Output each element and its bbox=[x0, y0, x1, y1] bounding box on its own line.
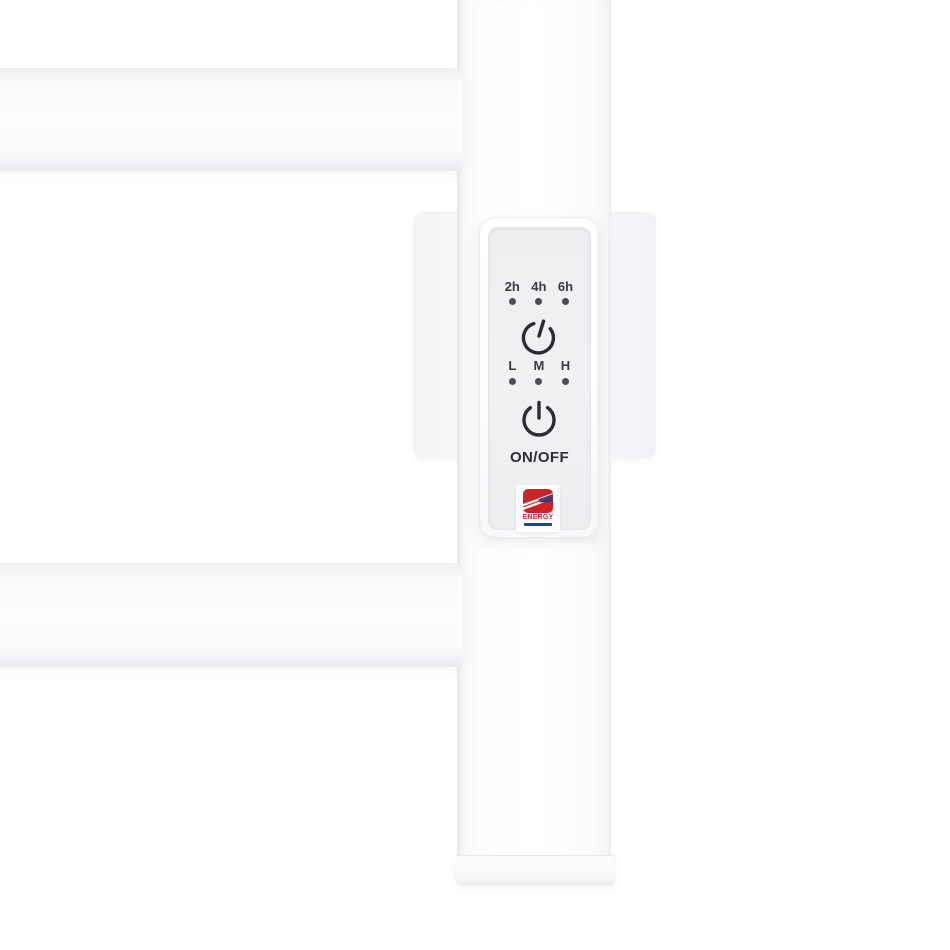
product-photo-scene: 2h 4h 6h bbox=[0, 0, 950, 950]
heat-indicator-dot bbox=[562, 378, 569, 385]
heat-label-row: L M H bbox=[499, 359, 579, 373]
timer-indicator-dot bbox=[535, 298, 542, 305]
timer-indicator-dot bbox=[509, 298, 516, 305]
towel-rail-bar-middle bbox=[0, 563, 463, 667]
timer-indicator-row bbox=[499, 297, 579, 305]
control-panel-face: 2h 4h 6h bbox=[488, 227, 591, 530]
heat-indicator-dot bbox=[535, 378, 542, 385]
control-panel: 2h 4h 6h bbox=[479, 217, 599, 538]
heat-indicator-row bbox=[499, 377, 579, 385]
towel-rail-bar-top bbox=[0, 68, 463, 171]
timer-indicator-dot bbox=[562, 298, 569, 305]
heat-level-label: M bbox=[526, 359, 553, 373]
energy-logo-tagline bbox=[524, 523, 552, 526]
timer-power-button[interactable] bbox=[519, 316, 559, 356]
energy-logo-text: ENERGY bbox=[523, 514, 554, 522]
power-timer-icon bbox=[519, 316, 559, 356]
power-icon bbox=[519, 398, 559, 438]
on-off-label: ON/OFF bbox=[489, 449, 590, 466]
timer-duration-label: 4h bbox=[526, 280, 553, 294]
on-off-power-button[interactable] bbox=[519, 398, 559, 438]
timer-label-row: 2h 4h 6h bbox=[499, 280, 579, 294]
energy-logo-emblem-icon bbox=[523, 489, 553, 513]
post-end-cap bbox=[455, 855, 616, 885]
heat-indicator-dot bbox=[509, 378, 516, 385]
timer-duration-label: 2h bbox=[499, 280, 526, 294]
heat-level-label: H bbox=[552, 359, 579, 373]
energy-logo: ENERGY bbox=[516, 485, 560, 532]
heat-level-label: L bbox=[499, 359, 526, 373]
timer-duration-label: 6h bbox=[552, 280, 579, 294]
